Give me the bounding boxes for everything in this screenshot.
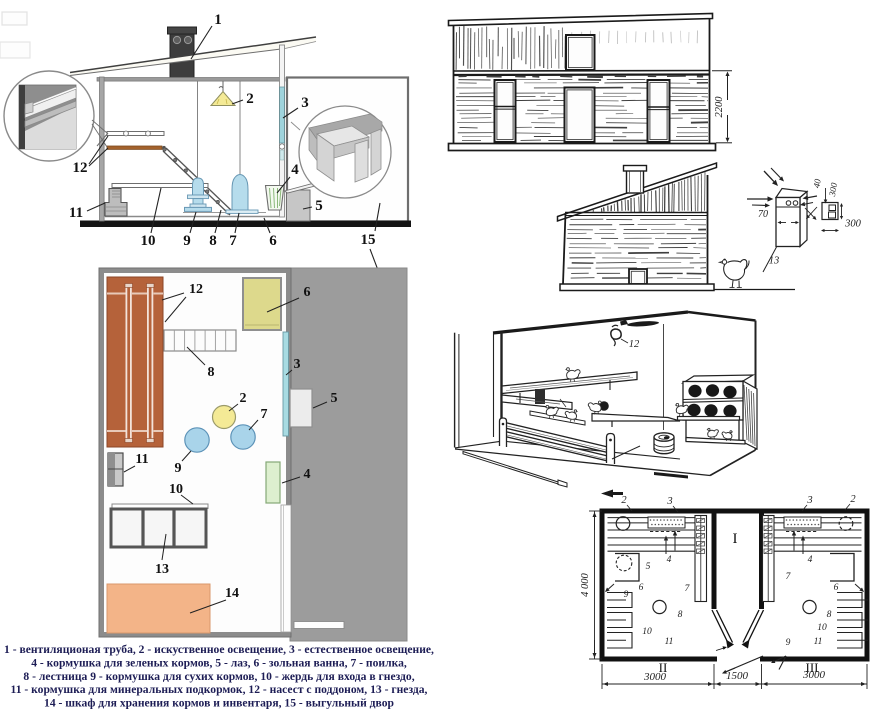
svg-text:8: 8 (678, 610, 683, 620)
svg-text:9: 9 (183, 233, 191, 249)
svg-text:10: 10 (817, 623, 827, 633)
svg-text:13: 13 (155, 562, 169, 577)
svg-text:70: 70 (758, 209, 768, 220)
svg-text:12: 12 (189, 282, 203, 297)
svg-text:3000: 3000 (802, 669, 826, 681)
svg-text:6: 6 (304, 285, 311, 300)
svg-text:1: 1 (214, 12, 222, 28)
svg-text:7: 7 (261, 407, 268, 422)
svg-text:I: I (733, 531, 738, 547)
svg-text:7: 7 (229, 233, 237, 249)
svg-text:10: 10 (642, 627, 652, 637)
svg-text:2200: 2200 (714, 96, 725, 118)
svg-text:4: 4 (808, 555, 813, 565)
svg-text:1 - вентиляционая труба, 2 - и: 1 - вентиляционая труба, 2 - искуственно… (4, 643, 434, 656)
svg-text:15: 15 (361, 232, 376, 248)
svg-text:1500: 1500 (726, 670, 749, 682)
svg-text:4: 4 (291, 162, 299, 178)
svg-text:6: 6 (639, 583, 644, 593)
svg-text:11: 11 (69, 205, 83, 221)
svg-text:4 000: 4 000 (580, 572, 591, 596)
svg-text:4: 4 (304, 467, 311, 482)
svg-text:3000: 3000 (643, 671, 667, 683)
svg-text:6: 6 (269, 233, 277, 249)
svg-text:8: 8 (827, 610, 832, 620)
svg-text:300: 300 (844, 219, 862, 230)
svg-text:4 - кормушка для зеленых кормо: 4 - кормушка для зеленых кормов, 5 - лаз… (31, 656, 407, 669)
svg-text:2: 2 (850, 494, 856, 505)
svg-text:6: 6 (834, 583, 839, 593)
svg-text:8 - лестница 9 - кормушка для: 8 - лестница 9 - кормушка для сухих корм… (23, 670, 414, 683)
svg-text:9: 9 (175, 461, 182, 476)
svg-text:10: 10 (141, 233, 156, 249)
svg-text:11 - кормушка для минеральных: 11 - кормушка для минеральных подкормок,… (11, 683, 428, 696)
svg-text:9: 9 (786, 638, 791, 648)
svg-text:2: 2 (240, 391, 247, 406)
svg-text:300: 300 (827, 181, 839, 198)
svg-text:2: 2 (246, 91, 254, 107)
svg-text:12: 12 (73, 160, 88, 176)
svg-text:40: 40 (811, 178, 822, 189)
svg-text:3: 3 (294, 357, 301, 372)
svg-text:14 - шкаф для хранения кормов: 14 - шкаф для хранения кормов и инвентар… (44, 697, 394, 709)
svg-text:9: 9 (624, 590, 629, 600)
svg-text:3: 3 (301, 95, 309, 111)
svg-text:11: 11 (135, 452, 148, 467)
svg-text:12: 12 (629, 339, 640, 350)
svg-text:3: 3 (666, 496, 672, 507)
svg-text:14: 14 (225, 586, 239, 601)
svg-text:8: 8 (208, 365, 215, 380)
svg-text:8: 8 (209, 233, 217, 249)
svg-text:5: 5 (331, 391, 338, 406)
svg-text:10: 10 (169, 482, 183, 497)
svg-text:5: 5 (646, 562, 651, 572)
svg-text:4: 4 (667, 555, 672, 565)
svg-text:11: 11 (814, 637, 823, 647)
svg-text:2: 2 (621, 495, 627, 506)
svg-text:13: 13 (769, 256, 780, 267)
svg-text:5: 5 (315, 198, 323, 214)
svg-text:11: 11 (665, 637, 674, 647)
svg-text:3: 3 (806, 495, 812, 506)
